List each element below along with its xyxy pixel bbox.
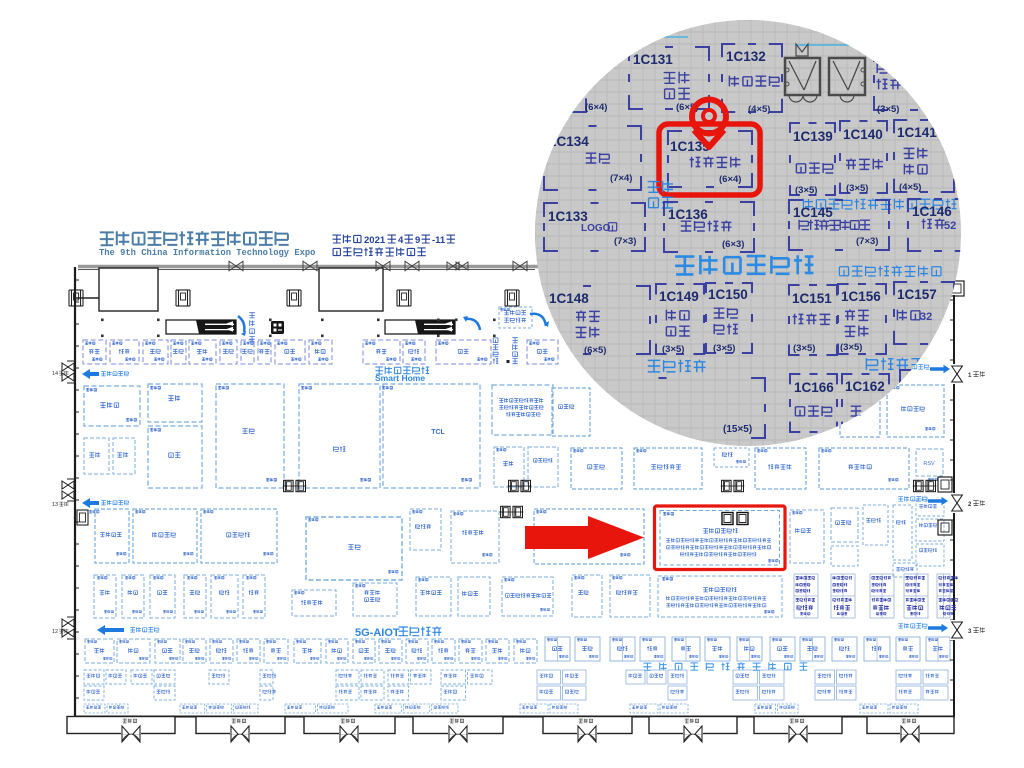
svg-text:1C141: 1C141 <box>897 125 937 140</box>
svg-text:(7×3): (7×3) <box>614 236 636 247</box>
svg-text:1C150: 1C150 <box>708 287 748 302</box>
svg-text:1C140: 1C140 <box>843 127 883 142</box>
svg-text:1C133: 1C133 <box>548 209 588 224</box>
svg-text:1C157: 1C157 <box>897 287 937 302</box>
svg-text:(7×4): (7×4) <box>610 173 632 184</box>
svg-text:1C156: 1C156 <box>841 289 881 304</box>
svg-text:The 9th China Information Tech: The 9th China Information Technology Exp… <box>99 248 315 258</box>
svg-text:(6×5): (6×5) <box>584 345 606 356</box>
svg-text:1C131: 1C131 <box>633 52 673 67</box>
svg-text:(3×5): (3×5) <box>840 342 862 353</box>
svg-text:2021: 2021 <box>364 235 386 246</box>
svg-text:(7×3): (7×3) <box>856 236 878 247</box>
svg-text:14: 14 <box>52 371 58 377</box>
svg-text:1C132: 1C132 <box>726 49 766 64</box>
svg-text:1C149: 1C149 <box>659 289 699 304</box>
svg-text:Smart Home: Smart Home <box>375 373 425 383</box>
svg-text:(6×4): (6×4) <box>585 102 607 113</box>
svg-text:(3×5): (3×5) <box>846 183 868 194</box>
svg-text:52: 52 <box>944 220 956 232</box>
svg-text:(3×5): (3×5) <box>795 185 817 196</box>
svg-text:1C145: 1C145 <box>793 205 833 220</box>
svg-text:1C139: 1C139 <box>793 129 833 144</box>
svg-text:RSV: RSV <box>923 461 935 467</box>
svg-text:1C148: 1C148 <box>549 291 589 306</box>
svg-text:5G-AIOT: 5G-AIOT <box>355 627 400 639</box>
svg-text:(4×5): (4×5) <box>899 182 921 193</box>
svg-text:(3×5): (3×5) <box>877 104 899 115</box>
svg-text:(15×5): (15×5) <box>723 424 752 435</box>
svg-text:(3×5): (3×5) <box>793 343 815 354</box>
svg-text:1C166: 1C166 <box>794 380 834 395</box>
svg-text:TCL: TCL <box>431 429 445 436</box>
svg-text:1C146: 1C146 <box>912 204 952 219</box>
svg-text:LOGO: LOGO <box>581 223 611 234</box>
svg-text:(4×5): (4×5) <box>748 104 770 115</box>
svg-text:1C136: 1C136 <box>668 207 708 222</box>
svg-text:(6×3): (6×3) <box>722 239 744 250</box>
svg-text:(3×5): (3×5) <box>662 344 684 355</box>
svg-text:(6×4): (6×4) <box>719 174 741 185</box>
svg-text:(3×5): (3×5) <box>713 343 735 354</box>
svg-text:1C162: 1C162 <box>845 379 885 394</box>
svg-text:13: 13 <box>52 502 58 508</box>
svg-text:-11: -11 <box>432 235 446 246</box>
svg-text:12: 12 <box>52 629 58 635</box>
svg-text:1C151: 1C151 <box>792 291 832 306</box>
svg-text:32: 32 <box>920 311 932 323</box>
svg-text:9: 9 <box>415 235 420 246</box>
svg-text:4: 4 <box>398 235 404 246</box>
